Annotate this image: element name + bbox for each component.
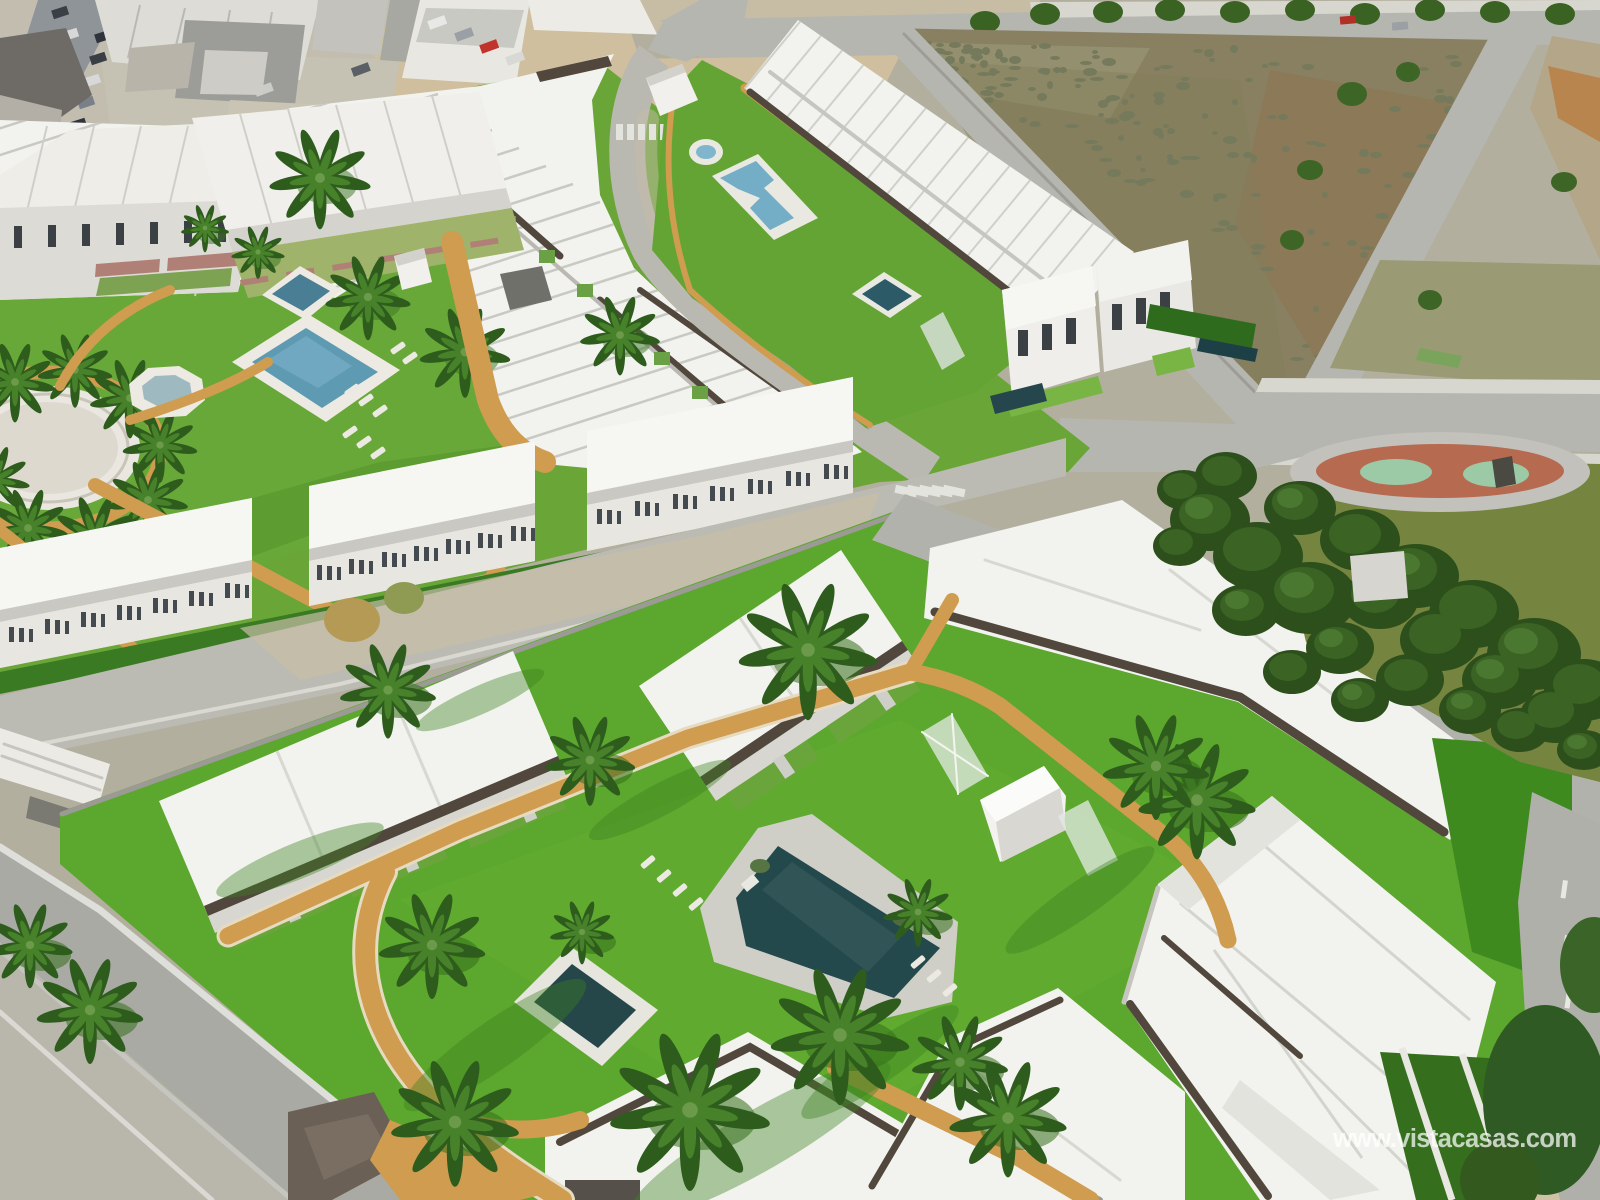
svg-text:www.vistacasas.com: www.vistacasas.com [1332, 1125, 1576, 1153]
